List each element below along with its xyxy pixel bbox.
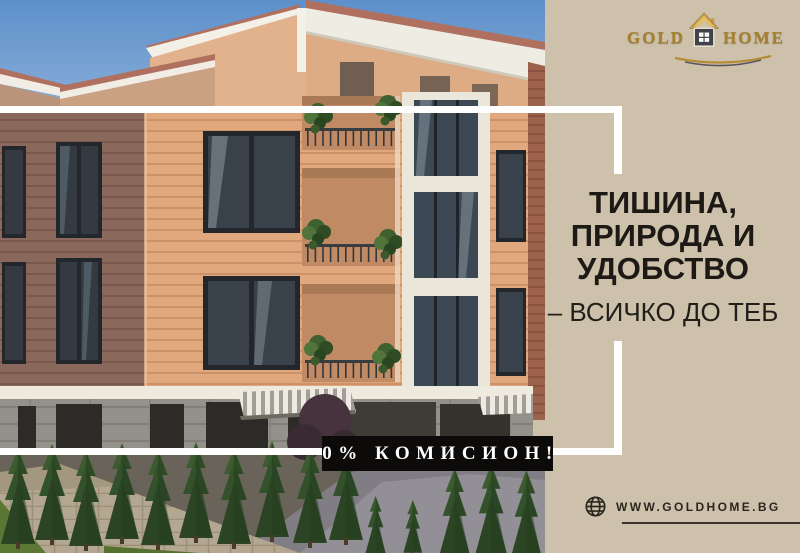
gold-home-logo: GOLD HOME	[627, 8, 785, 68]
website-underline	[622, 522, 800, 524]
headline-subtitle: – ВСИЧКО ДО ТЕБ	[535, 297, 791, 327]
frame-line-top	[0, 106, 622, 113]
website-row[interactable]: WWW.GOLDHOME.BG	[584, 495, 781, 518]
frame-line-right-lower	[614, 341, 622, 455]
commission-badge: 0% КОМИСИОН!	[322, 436, 553, 471]
headline-title: ТИШИНА, ПРИРОДА И УДОБСТВО	[535, 186, 791, 285]
logo-word-home: HOME	[723, 29, 785, 46]
logo-word-gold: GOLD	[627, 29, 685, 46]
website-url: WWW.GOLDHOME.BG	[616, 500, 781, 514]
ad-banner: 0% КОМИСИОН! GOLD HOME ТИШИНА, ПРИРОДА И…	[0, 0, 800, 553]
globe-icon	[584, 495, 607, 518]
swoosh-underline-icon	[673, 54, 773, 68]
house-icon	[688, 8, 720, 52]
frame-line-right-upper	[614, 106, 622, 174]
commission-badge-label: 0% КОМИСИОН!	[316, 443, 558, 465]
